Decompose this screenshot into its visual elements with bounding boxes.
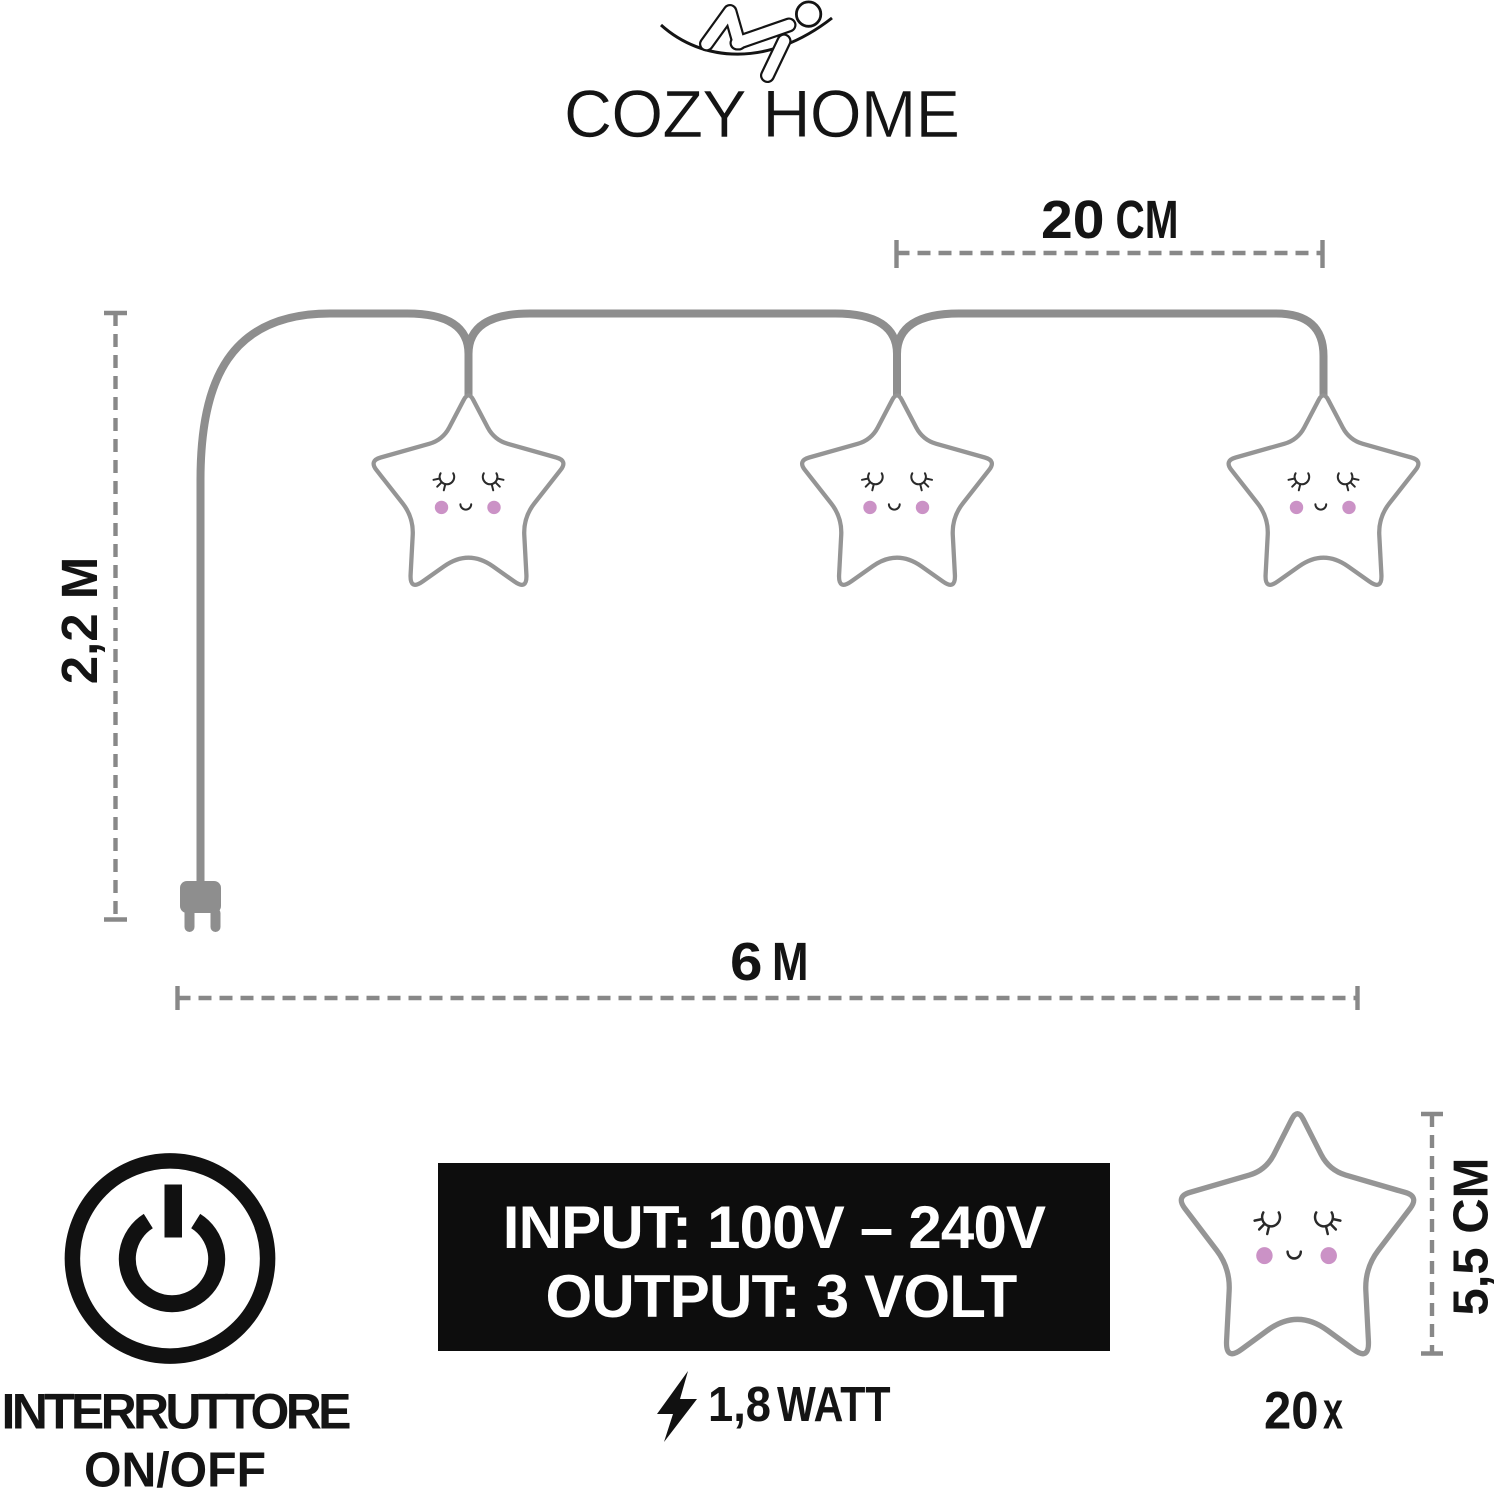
svg-text:2,2 M: 2,2 M <box>51 557 108 685</box>
svg-text:1,8: 1,8 <box>708 1378 771 1432</box>
svg-text:INPUT: 100V – 240V: INPUT: 100V – 240V <box>503 1194 1046 1261</box>
svg-text:5,5 CM: 5,5 CM <box>1445 1158 1494 1316</box>
svg-text:OUTPUT: 3 VOLT: OUTPUT: 3 VOLT <box>545 1263 1016 1330</box>
svg-text:INTERRUTTORE: INTERRUTTORE <box>2 1384 352 1440</box>
svg-text:CM: CM <box>1116 191 1179 250</box>
svg-text:ON/OFF: ON/OFF <box>84 1444 266 1498</box>
svg-text:COZY HOME: COZY HOME <box>564 78 966 152</box>
svg-text:20: 20 <box>1264 1382 1319 1441</box>
svg-text:M: M <box>772 933 809 992</box>
svg-text:x: x <box>1323 1382 1343 1441</box>
svg-text:6: 6 <box>730 933 763 992</box>
svg-text:WATT: WATT <box>777 1378 891 1432</box>
svg-text:20: 20 <box>1041 191 1105 250</box>
